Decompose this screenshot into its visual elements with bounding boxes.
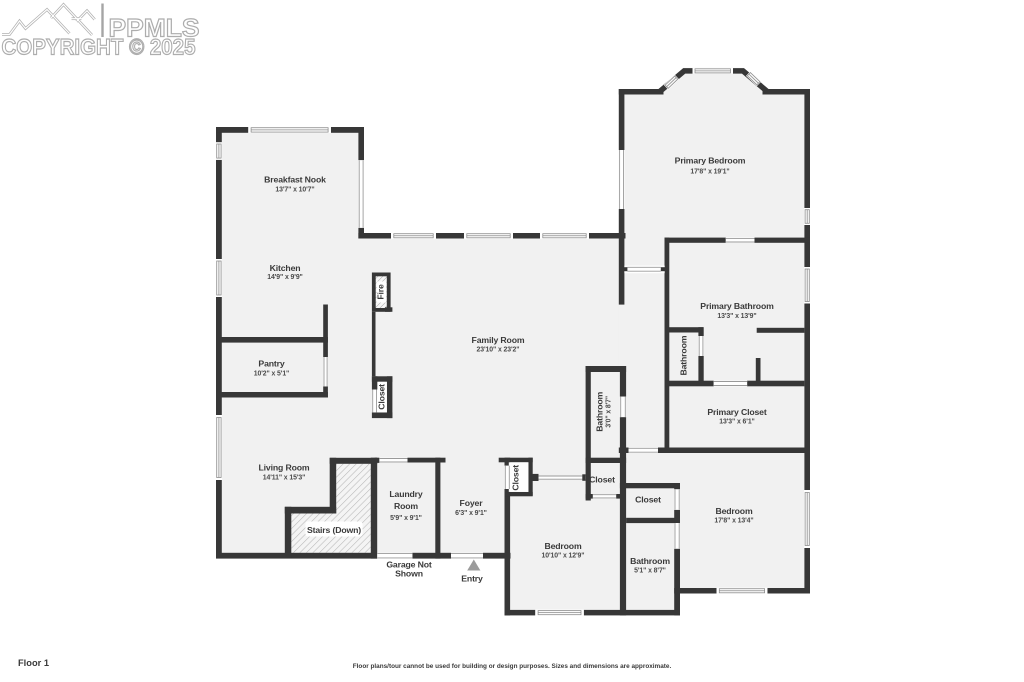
svg-text:COPYRIGHT © 2025: COPYRIGHT © 2025 [2,35,196,60]
svg-text:13'3" x 13'9": 13'3" x 13'9" [717,313,756,320]
svg-text:Room: Room [394,501,418,511]
svg-text:17'8" x 13'4": 17'8" x 13'4" [714,517,753,524]
svg-text:17'8" x 19'1": 17'8" x 19'1" [690,168,729,175]
svg-text:13'3" x 6'1": 13'3" x 6'1" [719,419,754,426]
svg-text:Family Room: Family Room [472,335,525,345]
svg-text:Bathroom: Bathroom [630,556,670,566]
svg-text:14'11" x 15'3": 14'11" x 15'3" [263,474,306,481]
svg-text:Closet: Closet [376,384,386,410]
svg-text:Bathroom: Bathroom [594,391,604,431]
svg-text:Foyer: Foyer [460,498,484,508]
svg-text:Bedroom: Bedroom [715,506,753,516]
svg-text:Primary Bedroom: Primary Bedroom [675,155,746,165]
svg-text:Bathroom: Bathroom [678,335,688,375]
svg-text:Kitchen: Kitchen [270,263,301,273]
svg-text:Shown: Shown [395,569,423,579]
svg-text:Primary Closet: Primary Closet [707,407,766,417]
svg-text:5'1" x 8'7": 5'1" x 8'7" [634,568,666,575]
svg-text:10'10" x 12'9": 10'10" x 12'9" [542,552,585,559]
svg-text:Breakfast Nook: Breakfast Nook [264,174,326,184]
svg-text:14'9" x 9'9": 14'9" x 9'9" [267,274,302,281]
svg-text:Entry: Entry [461,574,483,584]
svg-text:Laundry: Laundry [389,489,423,499]
svg-text:Bedroom: Bedroom [544,541,582,551]
svg-text:Primary Bathroom: Primary Bathroom [700,301,774,311]
svg-text:10'2" x 5'1": 10'2" x 5'1" [254,371,289,378]
svg-text:3'0" x 8'7": 3'0" x 8'7" [606,396,613,428]
svg-text:Floor 1: Floor 1 [18,658,49,668]
svg-text:6'3" x 9'1": 6'3" x 9'1" [455,510,487,517]
svg-text:Fire: Fire [376,284,386,300]
svg-text:Stairs (Down): Stairs (Down) [307,525,361,535]
svg-text:23'10" x 23'2": 23'10" x 23'2" [477,346,520,353]
svg-text:5'9" x 9'1": 5'9" x 9'1" [390,515,422,522]
svg-text:Floor plans/tour cannot be use: Floor plans/tour cannot be used for buil… [353,663,672,670]
svg-text:Closet: Closet [635,495,661,505]
svg-text:Living Room: Living Room [259,462,310,472]
svg-text:Closet: Closet [589,475,615,485]
svg-text:13'7" x 10'7": 13'7" x 10'7" [275,187,314,194]
svg-text:Closet: Closet [511,465,521,491]
svg-text:Pantry: Pantry [258,359,284,369]
